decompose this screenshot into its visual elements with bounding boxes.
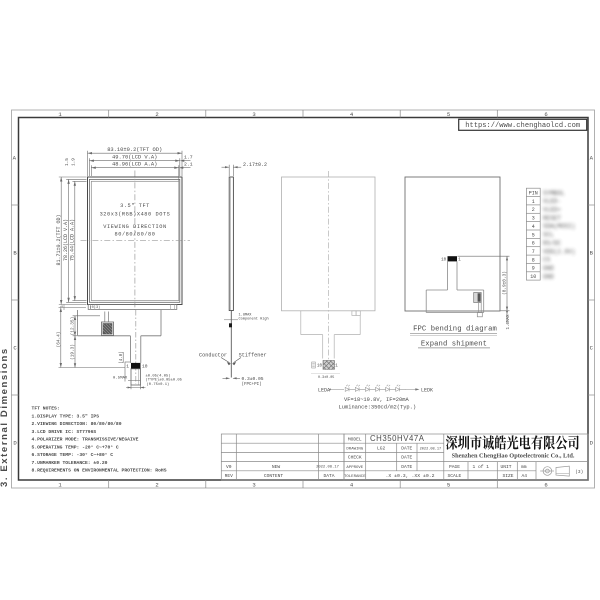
svg-text:MODEL: MODEL xyxy=(348,436,362,442)
svg-text:CS: CS xyxy=(543,257,551,264)
svg-text:0.3±0.05: 0.3±0.05 xyxy=(242,376,264,382)
svg-text:5: 5 xyxy=(447,111,450,118)
svg-text:(0.75±0.1): (0.75±0.1) xyxy=(147,382,170,387)
svg-text:LEDK: LEDK xyxy=(421,387,433,393)
svg-text:TFT NOTES:: TFT NOTES: xyxy=(32,406,60,412)
svg-text:2: 2 xyxy=(532,207,535,213)
svg-text:TOLERANCE: TOLERANCE xyxy=(344,475,366,479)
svg-text:75.44(LCD A.A): 75.44(LCD A.A) xyxy=(69,219,75,261)
svg-text:A4: A4 xyxy=(522,473,528,479)
svg-text:1.DISPLAY TYPE: 3.5" IPS: 1.DISPLAY TYPE: 3.5" IPS xyxy=(32,413,100,419)
svg-text:80/80/80/80: 80/80/80/80 xyxy=(114,232,155,238)
svg-text:Conductor: Conductor xyxy=(199,353,227,359)
svg-text:VLED-: VLED- xyxy=(543,198,561,205)
svg-text:1.7: 1.7 xyxy=(184,155,193,161)
svg-text:VF=18~19.8V, IF=20mA: VF=18~19.8V, IF=20mA xyxy=(344,397,409,403)
svg-text:NEW: NEW xyxy=(272,464,281,470)
svg-text:(64.4): (64.4) xyxy=(56,332,61,348)
svg-text:PAGE: PAGE xyxy=(449,464,460,470)
svg-text:48.96(LCD A.A): 48.96(LCD A.A) xyxy=(112,162,157,168)
svg-text:10: 10 xyxy=(441,259,447,263)
svg-text:78.26(LCD V.A): 78.26(LCD V.A) xyxy=(63,219,69,261)
svg-text:83.10±0.2(TFT OD): 83.10±0.2(TFT OD) xyxy=(107,147,162,153)
svg-text:2022.08.17: 2022.08.17 xyxy=(316,466,339,470)
svg-text:mm: mm xyxy=(521,465,527,470)
svg-text:SIZE: SIZE xyxy=(503,473,514,479)
svg-text:DRAWING: DRAWING xyxy=(346,448,363,452)
svg-text:FPC bending diagram: FPC bending diagram xyxy=(413,326,497,334)
svg-text:CHECK: CHECK xyxy=(348,455,362,461)
svg-text:(8.9±0.3): (8.9±0.3) xyxy=(503,271,508,295)
svg-text:DATE: DATE xyxy=(401,464,412,470)
svg-text:10: 10 xyxy=(142,363,148,369)
svg-text:6: 6 xyxy=(544,482,547,489)
svg-text:2: 2 xyxy=(155,111,158,118)
svg-text:VDD(2.8V): VDD(2.8V) xyxy=(543,248,575,255)
svg-text:6.STORAGE TEMP: -30° C~+80° C: 6.STORAGE TEMP: -30° C~+80° C xyxy=(32,452,114,458)
svg-text:Luminance:350cd/m2(Typ.): Luminance:350cd/m2(Typ.) xyxy=(339,404,417,410)
svg-text:Component High: Component High xyxy=(239,317,269,322)
svg-text:RESET: RESET xyxy=(543,215,561,222)
svg-text:0.3±0.05: 0.3±0.05 xyxy=(318,376,334,380)
svg-text:SDA(MOSI): SDA(MOSI) xyxy=(543,223,575,230)
svg-text:RS/DC: RS/DC xyxy=(543,240,561,247)
svg-text:SCL: SCL xyxy=(543,232,554,239)
svg-text:SYMBOL: SYMBOL xyxy=(543,190,565,197)
svg-text:https://www.chenghaolcd.com: https://www.chenghaolcd.com xyxy=(465,122,580,130)
svg-text:1: 1 xyxy=(126,363,129,369)
svg-text:V0: V0 xyxy=(226,464,232,470)
svg-text:3: 3 xyxy=(532,216,535,222)
svg-text:(FPC+PI): (FPC+PI) xyxy=(242,382,262,387)
svg-text:2.17±0.2: 2.17±0.2 xyxy=(243,162,267,168)
svg-text:UNIT: UNIT xyxy=(501,464,512,470)
svg-text:2022.08.17: 2022.08.17 xyxy=(420,447,442,451)
svg-text:DATE: DATE xyxy=(401,446,412,452)
svg-text:(4.0): (4.0) xyxy=(119,351,124,364)
svg-text:2.1: 2.1 xyxy=(184,162,193,168)
svg-text:1 of 1: 1 of 1 xyxy=(473,464,490,470)
svg-text:3.5" TFT: 3.5" TFT xyxy=(120,203,150,209)
svg-text:2: 2 xyxy=(155,482,158,489)
svg-text:VIEWING DIRECTION: VIEWING DIRECTION xyxy=(103,224,166,230)
svg-text:81.71±0.2(TFT OD): 81.71±0.2(TFT OD) xyxy=(56,214,62,265)
svg-text:3.LCD DRIVE IC: ST7796S: 3.LCD DRIVE IC: ST7796S xyxy=(32,429,97,435)
svg-text:6: 6 xyxy=(544,111,547,118)
svg-text:Expand shipment: Expand shipment xyxy=(421,341,487,349)
svg-text:DATA: DATA xyxy=(323,473,334,479)
svg-text:(0.3): (0.3) xyxy=(90,305,101,310)
svg-text:5: 5 xyxy=(447,482,450,489)
svg-text:3. External Dimensions: 3. External Dimensions xyxy=(0,347,10,487)
svg-text:LG2: LG2 xyxy=(377,446,386,452)
svg-text:CONTENT: CONTENT xyxy=(264,473,284,479)
svg-text:1.0MAX: 1.0MAX xyxy=(507,314,511,330)
svg-text:Stiffener: Stiffener xyxy=(239,353,267,359)
svg-text:SCALE: SCALE xyxy=(448,473,462,479)
svg-text:DATE: DATE xyxy=(401,455,412,461)
svg-text:1.5: 1.5 xyxy=(65,158,70,166)
svg-text:10: 10 xyxy=(530,274,536,280)
svg-text:7: 7 xyxy=(532,249,535,255)
svg-text:9: 9 xyxy=(532,266,535,272)
svg-text:REV: REV xyxy=(225,473,234,479)
svg-text:320x3(RGB)X480 DOTS: 320x3(RGB)X480 DOTS xyxy=(100,211,171,217)
svg-text:1.9: 1.9 xyxy=(71,158,76,166)
svg-text:4: 4 xyxy=(532,224,535,230)
svg-text:0.5MAX: 0.5MAX xyxy=(113,377,128,381)
svg-text:VLED+: VLED+ xyxy=(543,207,561,214)
svg-text:(3): (3) xyxy=(575,470,583,475)
svg-text:3: 3 xyxy=(252,111,255,118)
svg-text:4.POLARIZER MODE: TRANSMISSIVE: 4.POLARIZER MODE: TRANSMISSIVE/NEGAIVE xyxy=(32,437,139,443)
svg-text:3: 3 xyxy=(61,305,65,307)
svg-text:49.70(LCD V.A): 49.70(LCD V.A) xyxy=(112,155,157,161)
svg-text:7.UNMARKER TOLERANCE: ±0.20: 7.UNMARKER TOLERANCE: ±0.20 xyxy=(32,460,108,466)
svg-text:6: 6 xyxy=(532,241,535,247)
svg-text:CH350HV47A: CH350HV47A xyxy=(370,434,425,443)
svg-text:(TYPE)±0.05±0.05: (TYPE)±0.05±0.05 xyxy=(146,378,183,383)
svg-text:PIN: PIN xyxy=(529,191,538,197)
svg-text:8.REQUIREMENTS ON ENVIRONMENTA: 8.REQUIREMENTS ON ENVIRONMENTAL PROTECTI… xyxy=(32,468,167,474)
svg-text:3: 3 xyxy=(252,482,255,489)
svg-text:8: 8 xyxy=(532,257,535,263)
svg-text:GND: GND xyxy=(543,265,554,272)
svg-text:5.OPERATING TEMP: -20° C~+70°: 5.OPERATING TEMP: -20° C~+70° C xyxy=(32,444,119,450)
svg-text:Shenzhen ChengHao Optoelectron: Shenzhen ChengHao Optoelectronic Co., Lt… xyxy=(452,453,575,460)
svg-text:10: 10 xyxy=(317,364,323,368)
svg-text:2.VIEWING DIRECTION: 80/80/80/: 2.VIEWING DIRECTION: 80/80/80/80 xyxy=(32,421,122,427)
svg-text:(19.3): (19.3) xyxy=(71,344,76,360)
svg-text:APPROVE: APPROVE xyxy=(346,466,363,470)
svg-text:GND: GND xyxy=(543,273,554,280)
svg-text:5: 5 xyxy=(532,232,535,238)
svg-text:1: 1 xyxy=(532,199,535,205)
svg-text:LEDA: LEDA xyxy=(318,387,330,393)
svg-text:.X ±0.3, .XX ±0.2: .X ±0.3, .XX ±0.2 xyxy=(386,473,435,479)
svg-text:(12.35): (12.35) xyxy=(71,317,76,335)
